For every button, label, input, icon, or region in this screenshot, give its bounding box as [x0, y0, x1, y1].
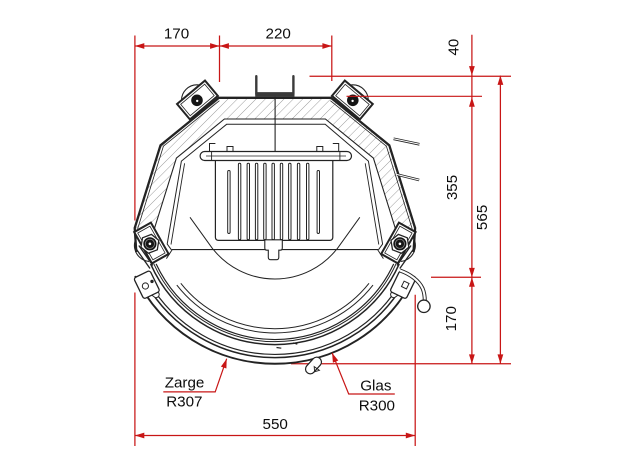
svg-text:565: 565: [474, 205, 491, 230]
svg-text:170: 170: [164, 26, 189, 43]
svg-text:R300: R300: [359, 398, 395, 415]
svg-text:Zarge: Zarge: [165, 375, 205, 392]
svg-text:170: 170: [443, 306, 460, 331]
svg-text:40: 40: [445, 39, 462, 56]
svg-text:355: 355: [444, 175, 461, 200]
svg-text:220: 220: [266, 26, 291, 43]
svg-text:R307: R307: [166, 394, 202, 411]
svg-text:Glas: Glas: [360, 377, 392, 394]
svg-text:550: 550: [263, 416, 288, 433]
